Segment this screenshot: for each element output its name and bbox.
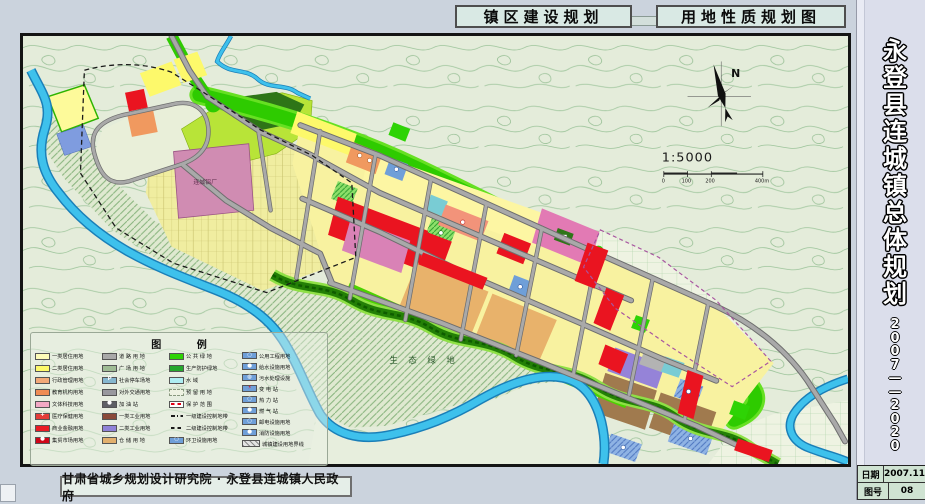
legend-swatch: [35, 389, 50, 396]
plan-title-vertical: 永登县连城镇总体规划: [867, 38, 923, 308]
legend-item-label: 对外交通用地: [119, 388, 150, 396]
legend-item-label: 一级建设控制地带: [186, 412, 228, 420]
legend-item: 二级建设控制地带: [169, 422, 240, 434]
legend-item: ●燃 气 站: [242, 405, 321, 416]
legend-swatch: ●: [35, 437, 50, 444]
sheet-number-row: 图号 08: [857, 483, 925, 500]
legend-swatch: [169, 425, 184, 432]
legend-swatch: ●: [242, 429, 257, 436]
legend-item: 预 留 用 地: [169, 386, 240, 398]
legend-column: 一类居住用地二类居住用地行政管理用地教育机构用地文体科技用地+医疗保健用地商业金…: [35, 350, 100, 449]
legend-item: 生产防护绿地: [169, 362, 240, 374]
legend-item: ○环卫设施用地: [169, 434, 240, 446]
sheet-number-label: 图号: [857, 483, 888, 500]
svg-text:400m: 400m: [755, 178, 769, 184]
legend-item-label: 一类工业用地: [119, 412, 150, 420]
legend-swatch: [35, 377, 50, 384]
legend-item: 商业金融用地: [35, 422, 100, 434]
legend-item-label: 二级建设控制地带: [186, 424, 228, 432]
legend-item: 一类工业用地: [102, 410, 167, 422]
legend-item: 水 域: [169, 374, 240, 386]
plan-year-char: 2: [867, 426, 923, 440]
legend-item-label: 保 护 范 围: [186, 400, 212, 408]
legend-swatch: P: [102, 377, 117, 384]
date-row: 日期 2007.11: [857, 466, 925, 483]
legend-swatch: ●: [242, 363, 257, 370]
legend-item-label: 医疗保健用地: [52, 412, 83, 420]
plan-year-char: 0: [867, 440, 923, 454]
date-label: 日期: [857, 466, 883, 483]
plan-title-char: 登: [867, 65, 923, 92]
legend-item: 道 路 用 地: [102, 350, 167, 362]
legend-swatch: [102, 353, 117, 360]
legend-item: 行政管理用地: [35, 374, 100, 386]
legend-item-label: 热 力 站: [259, 396, 278, 404]
legend-item-label: 文体科技用地: [52, 400, 83, 408]
legend-item-label: 邮电设施用地: [259, 418, 290, 426]
legend-swatch: [102, 413, 117, 420]
sheet-number-value: 08: [888, 483, 925, 500]
sheet-title: 用地性质规划图: [656, 5, 846, 28]
legend-swatch: ○: [242, 352, 257, 359]
sheet-series-title: 镇区建设规划: [455, 5, 632, 28]
plan-year-char: —: [867, 386, 923, 400]
legend-item: 仓 储 用 地: [102, 434, 167, 446]
legend-swatch: [169, 377, 184, 384]
date-value: 2007.11: [883, 466, 925, 483]
legend-item-label: 环卫设施用地: [186, 436, 217, 444]
legend-item: ●集贸市场用地: [35, 434, 100, 446]
legend-swatch: ○: [169, 437, 184, 444]
legend-item: ●消防设施用地: [242, 427, 321, 438]
legend-item: 文体科技用地: [35, 398, 100, 410]
legend-item: 二类工业用地: [102, 422, 167, 434]
planning-map-sheet: N 1:5000 0 100 200 400m 生 态 绿 地 连城铝厂 图 例…: [0, 0, 925, 500]
plan-year-char: 7: [867, 359, 923, 373]
legend-swatch: ⚡: [242, 385, 257, 392]
corner-tab: [0, 484, 16, 502]
factory-label: 连城铝厂: [193, 178, 217, 186]
legend-item-label: 一类居住用地: [52, 352, 83, 360]
legend-item-label: 公用工程用地: [259, 352, 290, 360]
legend-swatch: [102, 437, 117, 444]
legend-item-label: 社会停车场地: [119, 376, 150, 384]
scale-text: 1:5000: [662, 150, 713, 165]
legend-swatch: [169, 353, 184, 360]
plan-title-char: 总: [867, 200, 923, 227]
sheet-info-table: 日期 2007.11 图号 08: [857, 465, 925, 500]
legend-swatch: [35, 353, 50, 360]
legend-swatch: [35, 365, 50, 372]
legend-item-label: 变 电 站: [259, 385, 278, 393]
legend-item-label: 公 共 绿 地: [186, 352, 212, 360]
plan-title-char: 城: [867, 146, 923, 173]
legend-swatch: +: [35, 413, 50, 420]
legend-item: 一类居住用地: [35, 350, 100, 362]
svg-text:0: 0: [662, 178, 665, 184]
legend-item-label: 道 路 用 地: [119, 352, 145, 360]
credit-box: 甘肃省城乡规划设计研究院 · 永登县连城镇人民政府: [60, 476, 352, 497]
legend-item-label: 加 油 站: [119, 400, 138, 408]
legend-item: 二类居住用地: [35, 362, 100, 374]
legend-swatch: [169, 401, 184, 408]
title-block-sidebar: 永登县连城镇总体规划 2007——2020 日期 2007.11 图号 08: [856, 0, 925, 500]
legend-item-label: 水 域: [186, 376, 198, 384]
legend-item: 保 护 范 围: [169, 398, 240, 410]
legend-item: ⚡变 电 站: [242, 383, 321, 394]
legend-item: ○公用工程用地: [242, 350, 321, 361]
legend-swatch: [242, 440, 260, 447]
legend-swatch: ●: [242, 407, 257, 414]
legend-columns: 一类居住用地二类居住用地行政管理用地教育机构用地文体科技用地+医疗保健用地商业金…: [35, 350, 323, 449]
plan-year-char: 0: [867, 345, 923, 359]
legend: 图 例 一类居住用地二类居住用地行政管理用地教育机构用地文体科技用地+医疗保健用…: [30, 332, 328, 466]
plan-years-vertical: 2007——2020: [867, 318, 923, 453]
legend-item: 公 共 绿 地: [169, 350, 240, 362]
legend-item: +医疗保健用地: [35, 410, 100, 422]
plan-title-char: 划: [867, 281, 923, 308]
legend-column: 道 路 用 地广 场 用 地P社会停车场地对外交通用地●加 油 站一类工业用地二…: [102, 350, 167, 449]
legend-item-label: 广 场 用 地: [119, 364, 145, 372]
legend-item-label: 生产防护绿地: [186, 364, 217, 372]
legend-item: ○邮电设施用地: [242, 416, 321, 427]
plan-title-char: 体: [867, 227, 923, 254]
legend-swatch: ○: [242, 396, 257, 403]
legend-swatch: [102, 365, 117, 372]
plan-year-char: 0: [867, 332, 923, 346]
legend-swatch: ●: [102, 401, 117, 408]
plan-title-char: 连: [867, 119, 923, 146]
legend-item: 广 场 用 地: [102, 362, 167, 374]
legend-item-label: 污水处理设施: [259, 374, 290, 382]
sidebar-strip: [857, 0, 865, 500]
plan-year-char: 2: [867, 318, 923, 332]
legend-swatch: ○: [242, 418, 257, 425]
legend-column: ○公用工程用地●给水设施用地◍污水处理设施⚡变 电 站○热 力 站●燃 气 站○…: [242, 350, 321, 449]
legend-item-label: 城镇建设用地界线: [262, 440, 304, 448]
plan-year-char: 2: [867, 399, 923, 413]
legend-swatch: [102, 425, 117, 432]
plan-year-char: 0: [867, 413, 923, 427]
plan-title-char: 县: [867, 92, 923, 119]
legend-item: 对外交通用地: [102, 386, 167, 398]
legend-swatch: [169, 413, 184, 420]
legend-item-label: 集贸市场用地: [52, 436, 83, 444]
legend-item-label: 消防设施用地: [259, 429, 290, 437]
plan-year-char: —: [867, 372, 923, 386]
eco-green-label: 生 态 绿 地: [389, 355, 458, 365]
legend-swatch: [102, 389, 117, 396]
legend-item-label: 商业金融用地: [52, 424, 83, 432]
legend-item: 一级建设控制地带: [169, 410, 240, 422]
legend-item: P社会停车场地: [102, 374, 167, 386]
legend-title: 图 例: [51, 336, 323, 350]
svg-text:100: 100: [682, 178, 691, 184]
legend-item-label: 二类工业用地: [119, 424, 150, 432]
legend-item-label: 预 留 用 地: [186, 388, 212, 396]
north-label: N: [731, 67, 740, 80]
legend-item-label: 教育机构用地: [52, 388, 83, 396]
legend-swatch: [169, 389, 184, 396]
legend-item: ○热 力 站: [242, 394, 321, 405]
legend-swatch: [169, 365, 184, 372]
legend-swatch: ◍: [242, 374, 257, 381]
legend-item: ●加 油 站: [102, 398, 167, 410]
legend-item: ●给水设施用地: [242, 361, 321, 372]
plan-title-char: 镇: [867, 173, 923, 200]
legend-swatch: [35, 425, 50, 432]
legend-item-label: 行政管理用地: [52, 376, 83, 384]
legend-item-label: 燃 气 站: [259, 407, 278, 415]
legend-item-label: 二类居住用地: [52, 364, 83, 372]
legend-item: ◍污水处理设施: [242, 372, 321, 383]
legend-item: 教育机构用地: [35, 386, 100, 398]
legend-column: 公 共 绿 地生产防护绿地水 域预 留 用 地保 护 范 围一级建设控制地带二级…: [169, 350, 240, 449]
legend-item-label: 仓 储 用 地: [119, 436, 145, 444]
plan-title-char: 永: [867, 38, 923, 65]
svg-text:200: 200: [705, 178, 714, 184]
legend-item: 城镇建设用地界线: [242, 438, 321, 449]
legend-item-label: 给水设施用地: [259, 363, 290, 371]
plan-title-char: 规: [867, 254, 923, 281]
legend-swatch: [35, 401, 50, 408]
